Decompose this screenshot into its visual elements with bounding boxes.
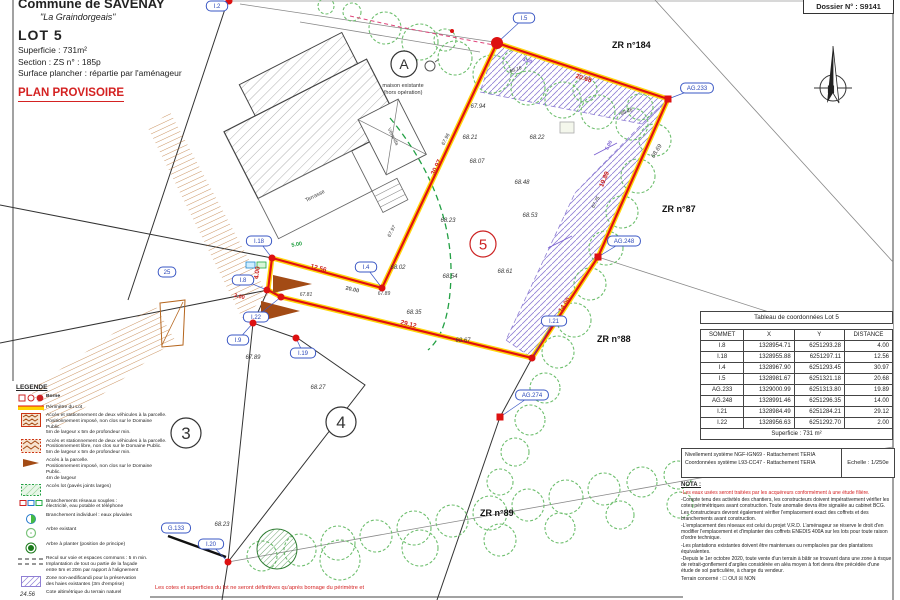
point-bubble-label: I.4 bbox=[363, 265, 370, 271]
elevation-label: 68.67 bbox=[455, 338, 471, 344]
hedge-dashed-line bbox=[350, 16, 494, 45]
survey-point bbox=[278, 294, 285, 301]
terrain-concerne-line: Terrain concerné : ☐ OUI ☒ NON bbox=[681, 576, 893, 582]
point-bubble-label: G.133 bbox=[168, 526, 185, 532]
coordinate-table-title: Tableau de coordonnées Lot 5 bbox=[700, 311, 893, 324]
network-box-water bbox=[246, 262, 255, 268]
recul-icon bbox=[16, 556, 46, 566]
cote-icon: 24.56 bbox=[16, 590, 46, 598]
tree bbox=[549, 480, 583, 514]
coord-cell: 6251296.35 bbox=[794, 396, 844, 407]
utility-symbol bbox=[425, 61, 435, 71]
nota-paragraph: -Les plantations existantes doivent être… bbox=[681, 543, 893, 555]
legend-item: Accès à la parcelle.Positionnement impos… bbox=[16, 458, 168, 481]
coord-cell: 1328981.67 bbox=[744, 374, 794, 385]
elevation-label: 68.69 bbox=[651, 143, 664, 159]
tree bbox=[397, 511, 431, 545]
tree bbox=[588, 473, 620, 505]
survey-point bbox=[250, 320, 257, 327]
legend-item-text: Accès à la parcelle.Positionnement impos… bbox=[46, 458, 168, 481]
coordinate-table-footer: Superficie : 731 m² bbox=[701, 429, 893, 440]
survey-point bbox=[379, 285, 386, 292]
survey-point bbox=[529, 355, 536, 362]
elevation-label: 68.35 bbox=[406, 310, 422, 316]
zone-label: ZR n°87 bbox=[662, 204, 696, 214]
point-bubble-label: I.20 bbox=[206, 542, 217, 548]
coord-cell: 1328955.88 bbox=[744, 352, 794, 363]
legend: LEGENDE BornePérimètre du LotAccès et st… bbox=[16, 384, 168, 600]
nota-paragraph: -Depuis le 1er octobre 2020, toute vente… bbox=[681, 556, 893, 575]
zone-label: ZR n°88 bbox=[597, 334, 631, 344]
tree bbox=[402, 530, 438, 566]
point-bubble-label: I.21 bbox=[549, 319, 560, 325]
elevation-label: 67.89 bbox=[378, 291, 391, 297]
legend-item-text: Recul sur voie et espaces communs : 5 m … bbox=[46, 556, 147, 573]
legend-item-text: Arbre à planter (position de principe) bbox=[46, 542, 125, 548]
table-row: I.51328981.676251321.1820.68 bbox=[701, 374, 893, 385]
hedge-point bbox=[450, 29, 454, 33]
elevation-label: 68.27 bbox=[310, 385, 326, 391]
borne-icon bbox=[16, 394, 46, 402]
legend-item-text: Accès et stationnement de deux véhicules… bbox=[46, 413, 168, 436]
legend-title: LEGENDE bbox=[16, 384, 168, 391]
measurement-label: 4.00 bbox=[253, 266, 262, 280]
survey-point bbox=[225, 559, 232, 566]
note-a-line: (hors opération) bbox=[384, 90, 423, 96]
legend-item-text: Borne bbox=[46, 394, 60, 400]
table-row: I.181328955.886251297.1112.56 bbox=[701, 352, 893, 363]
table-row: I.211328984.496251284.2129.12 bbox=[701, 407, 893, 418]
tree bbox=[318, 0, 334, 14]
sommet-cell: I.18 bbox=[701, 352, 744, 363]
coord-cell: 6251284.21 bbox=[794, 407, 844, 418]
nota-red-line: -Les eaux usées seront traitées par les … bbox=[681, 490, 893, 496]
tree bbox=[438, 41, 472, 75]
legend-item: Accès et stationnement de deux véhicules… bbox=[16, 439, 168, 456]
coord-cell: 2.00 bbox=[844, 418, 892, 429]
branchements-icon bbox=[16, 499, 46, 507]
coordinate-table: Tableau de coordonnées Lot 5 SOMMETXYDIS… bbox=[700, 311, 893, 440]
point-bubble-label: AG.248 bbox=[614, 239, 635, 245]
hatched-tree bbox=[257, 529, 297, 569]
elevation-label: 68.21 bbox=[462, 135, 477, 141]
tree bbox=[545, 513, 575, 543]
table-row: AG.2481328991.466251296.3514.00 bbox=[701, 396, 893, 407]
talus-hatch bbox=[30, 112, 268, 430]
tree bbox=[484, 524, 516, 556]
coord-cell: 1329000.99 bbox=[744, 385, 794, 396]
scale-label: Echelle : 1/250e bbox=[841, 449, 894, 477]
tree bbox=[501, 438, 529, 466]
legend-item-text: Accès lot (pavés joints larges) bbox=[46, 484, 111, 490]
coord-cell: 6251313.80 bbox=[794, 385, 844, 396]
north-arrow: N bbox=[814, 46, 852, 103]
note-a-line: maison existante bbox=[382, 83, 423, 89]
legend-item: Arbre existant bbox=[16, 527, 168, 539]
zone-non-aedificandi-icon bbox=[16, 576, 46, 587]
point-bubble-label: I.18 bbox=[254, 239, 265, 245]
measurement-label: 20.00 bbox=[345, 286, 360, 295]
elevation-label: 68.48 bbox=[514, 180, 530, 186]
legend-item: Accès lot (pavés joints larges) bbox=[16, 484, 168, 496]
tree bbox=[321, 526, 355, 560]
sommet-cell: AG.233 bbox=[701, 385, 744, 396]
coord-cell: 14.00 bbox=[844, 396, 892, 407]
coordinate-table-grid: SOMMETXYDISTANCE I.81328954.716251293.28… bbox=[700, 329, 893, 440]
sommet-cell: I.21 bbox=[701, 407, 744, 418]
point-bubble-label: AG.274 bbox=[522, 393, 543, 399]
sommet-cell: I.8 bbox=[701, 341, 744, 352]
dossier-box: Dossier N° : S9141 bbox=[803, 0, 894, 14]
tree bbox=[487, 469, 513, 495]
bottom-disclaimer: Les cotes et superficies du lot ne seron… bbox=[155, 585, 575, 591]
survey-point bbox=[269, 255, 276, 262]
tree bbox=[369, 12, 401, 44]
point-bubble-label: 25 bbox=[164, 270, 171, 276]
elevation-label: 67.94 bbox=[470, 104, 486, 110]
acces-imposed-icon bbox=[16, 413, 46, 427]
coord-column-header: DISTANCE bbox=[844, 330, 892, 341]
survey-point bbox=[293, 335, 300, 342]
nota-paragraph: -L'emplacement des réseaux est celui du … bbox=[681, 523, 893, 542]
coord-cell: 4.00 bbox=[844, 341, 892, 352]
surface-plancher-line: Surface plancher : répartie par l'aménag… bbox=[18, 68, 268, 79]
measurement-label: 5.00 bbox=[291, 241, 303, 249]
survey-point bbox=[665, 96, 672, 103]
elevation-label: 68.23 bbox=[214, 522, 230, 528]
svg-text:24.56: 24.56 bbox=[19, 592, 36, 598]
legend-item-text: Arbre existant bbox=[46, 527, 76, 533]
tree bbox=[627, 467, 657, 497]
table-row: I.81328954.716251293.284.00 bbox=[701, 341, 893, 352]
coord-cell: 6251293.28 bbox=[794, 341, 844, 352]
parcel-number: A bbox=[399, 56, 409, 72]
superficie-line: Superficie : 731m² bbox=[18, 45, 268, 56]
legend-item: Zone non-aedificandi pour la préservatio… bbox=[16, 576, 168, 588]
coord-column-header: SOMMET bbox=[701, 330, 744, 341]
legend-item-text: Périmètre du Lot bbox=[46, 405, 82, 411]
elevation-label: 68.02 bbox=[390, 265, 406, 271]
north-label: N bbox=[827, 84, 835, 96]
section-line: Section : ZS n° : 185p bbox=[18, 57, 268, 68]
zone-label: ZR n°89 bbox=[480, 508, 514, 518]
coordonnees-line: Coordonnées système L93-CC47 - Rattachem… bbox=[685, 459, 838, 467]
reference-box: Nivellement système NGF-IGN69 - Rattache… bbox=[681, 448, 895, 478]
pluvial-icon bbox=[16, 513, 46, 525]
parcel-number: 5 bbox=[479, 236, 487, 253]
legend-item: Branchement individuel : eaux pluviales bbox=[16, 513, 168, 525]
acces-libre-icon bbox=[16, 439, 46, 453]
acces-arrow-icon bbox=[16, 458, 46, 468]
coord-cell: 1328967.90 bbox=[744, 363, 794, 374]
sommet-cell: I.4 bbox=[701, 363, 744, 374]
parcel-number: 4 bbox=[336, 413, 345, 432]
coord-cell: 1328991.46 bbox=[744, 396, 794, 407]
lot-title: LOT 5 bbox=[18, 27, 268, 45]
coord-cell: 1328954.71 bbox=[744, 341, 794, 352]
table-row: I.221328956.636251292.702.00 bbox=[701, 418, 893, 429]
table-row: AG.2331329000.996251313.8019.89 bbox=[701, 385, 893, 396]
tree bbox=[542, 336, 574, 368]
coord-cell: 19.89 bbox=[844, 385, 892, 396]
coord-cell: 12.56 bbox=[844, 352, 892, 363]
point-bubble-label: AG.233 bbox=[687, 86, 708, 92]
tree bbox=[436, 505, 468, 537]
coord-cell: 1328984.49 bbox=[744, 407, 794, 418]
point-bubble-label: I.19 bbox=[298, 351, 309, 357]
sommet-cell: AG.248 bbox=[701, 396, 744, 407]
arbre-planter-icon bbox=[16, 542, 46, 554]
coord-column-header: Y bbox=[794, 330, 844, 341]
coord-column-header: X bbox=[744, 330, 794, 341]
title-block: Commune de SAVENAY "La Graindorgeais" LO… bbox=[18, 0, 268, 102]
acces-lot-icon bbox=[16, 484, 46, 496]
elevation-label: 68.23 bbox=[440, 218, 456, 224]
coord-cell: 6251293.45 bbox=[794, 363, 844, 374]
coord-cell: 6251321.18 bbox=[794, 374, 844, 385]
legend-item: Accès et stationnement de deux véhicules… bbox=[16, 413, 168, 436]
point-bubble-label: I.5 bbox=[521, 16, 528, 22]
utility-box bbox=[560, 122, 574, 133]
survey-point bbox=[497, 414, 504, 421]
elevation-label: 68.53 bbox=[522, 213, 538, 219]
elevation-label: 68.22 bbox=[529, 135, 545, 141]
survey-point bbox=[491, 37, 503, 49]
tree bbox=[606, 501, 634, 529]
coord-cell: 20.68 bbox=[844, 374, 892, 385]
perimetre-icon bbox=[16, 405, 46, 411]
legend-item-text: Zone non-aedificandi pour la préservatio… bbox=[46, 576, 136, 588]
sommet-cell: I.22 bbox=[701, 418, 744, 429]
coord-cell: 29.12 bbox=[844, 407, 892, 418]
survey-point bbox=[264, 287, 271, 294]
nota-block: NOTA : -Les eaux usées seront traitées p… bbox=[681, 482, 893, 584]
elevation-label: 67.97 bbox=[387, 224, 398, 238]
arbre-existant-icon bbox=[16, 527, 46, 539]
measurement-label: 30.97 bbox=[430, 158, 444, 176]
legend-item-text: Branchements réseaux souples :électricit… bbox=[46, 499, 123, 511]
elevation-label: 67.89 bbox=[245, 355, 261, 361]
point-bubble-label: I.9 bbox=[235, 338, 242, 344]
tree bbox=[515, 405, 545, 435]
commune-title: Commune de SAVENAY bbox=[18, 0, 268, 12]
coord-cell: 6251292.70 bbox=[794, 418, 844, 429]
legend-item-text: Branchement individuel : eaux pluviales bbox=[46, 513, 132, 519]
elevation-label: 68.61 bbox=[497, 269, 512, 275]
coord-cell: 6251297.11 bbox=[794, 352, 844, 363]
point-bubble-label: I.8 bbox=[240, 278, 247, 284]
plan-sheet: Terrasse Véranda bbox=[0, 0, 900, 600]
coord-cell: 1328956.63 bbox=[744, 418, 794, 429]
legend-item: 24.56Cote altimétrique du terrain nature… bbox=[16, 590, 168, 598]
legend-item-text: Cote altimétrique du terrain naturel bbox=[46, 590, 121, 596]
coord-cell: 30.97 bbox=[844, 363, 892, 374]
legend-item: Arbre à planter (position de principe) bbox=[16, 542, 168, 554]
legend-item-text: Accès et stationnement de deux véhicules… bbox=[46, 439, 166, 456]
elevation-label: 68.54 bbox=[442, 274, 458, 280]
table-row: I.41328967.906251293.4530.97 bbox=[701, 363, 893, 374]
nota-title: NOTA : bbox=[681, 482, 893, 488]
nivellement-line: Nivellement système NGF-IGN69 - Rattache… bbox=[685, 451, 838, 459]
parcel-number: 3 bbox=[181, 424, 190, 443]
nota-paragraph: -Compte tenu des activités des chantiers… bbox=[681, 497, 893, 522]
legend-item: Recul sur voie et espaces communs : 5 m … bbox=[16, 556, 168, 573]
sommet-cell: I.5 bbox=[701, 374, 744, 385]
legend-item: Branchements réseaux souples :électricit… bbox=[16, 499, 168, 511]
elevation-label: 67.81 bbox=[300, 292, 313, 298]
legend-item: Borne bbox=[16, 394, 168, 402]
lieu-dit: "La Graindorgeais" bbox=[40, 12, 268, 23]
tree bbox=[320, 540, 360, 580]
tree bbox=[512, 489, 544, 521]
legend-item: Périmètre du Lot bbox=[16, 405, 168, 411]
zone-label: ZR n°184 bbox=[612, 40, 651, 50]
survey-point bbox=[595, 254, 602, 261]
elevation-label: 68.07 bbox=[469, 159, 485, 165]
plan-provisoire-stamp: PLAN PROVISOIRE bbox=[18, 86, 124, 102]
